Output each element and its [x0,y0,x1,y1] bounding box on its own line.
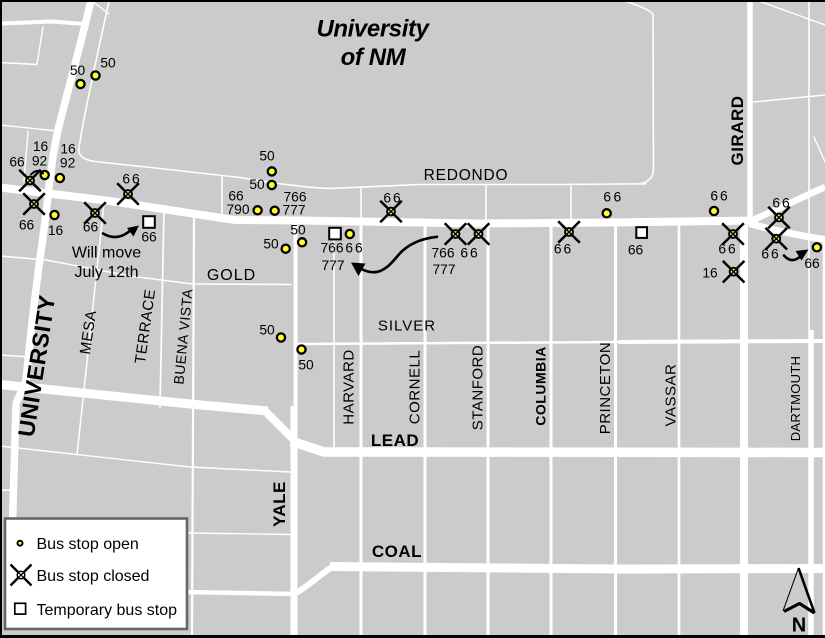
svg-text:66: 66 [554,241,573,256]
svg-text:66: 66 [718,242,737,257]
svg-text:50: 50 [100,56,116,71]
svg-text:66: 66 [804,256,820,271]
svg-text:July 12th: July 12th [74,264,138,281]
svg-text:92: 92 [32,154,47,169]
svg-text:PRINCETON: PRINCETON [597,342,614,435]
svg-text:COLUMBIA: COLUMBIA [533,346,549,425]
svg-text:16: 16 [60,142,76,157]
svg-text:HARVARD: HARVARD [341,349,358,424]
svg-text:STANFORD: STANFORD [470,345,487,430]
svg-text:Temporary bus stop: Temporary bus stop [37,602,178,619]
svg-text:SILVER: SILVER [378,318,436,335]
svg-text:16: 16 [33,139,49,154]
svg-text:66: 66 [383,191,402,206]
svg-text:50: 50 [263,237,279,252]
svg-text:16: 16 [702,266,718,281]
svg-text:GIRARD: GIRARD [728,95,747,165]
svg-text:Will move: Will move [72,245,141,262]
svg-text:Bus stop closed: Bus stop closed [37,568,150,585]
svg-text:COAL: COAL [372,542,422,561]
svg-text:66: 66 [141,230,157,245]
svg-text:66: 66 [345,241,364,256]
svg-text:50: 50 [290,222,306,237]
svg-text:777: 777 [321,258,344,273]
svg-text:DARTMOUTH: DARTMOUTH [788,356,803,442]
svg-text:66: 66 [710,189,729,204]
svg-text:766: 766 [320,241,343,256]
svg-text:of NM: of NM [341,44,407,71]
svg-text:VASSAR: VASSAR [663,364,680,427]
svg-text:66: 66 [761,247,780,262]
svg-text:N: N [792,615,806,637]
svg-text:66: 66 [19,218,35,233]
svg-text:66: 66 [460,246,479,261]
svg-text:LEAD: LEAD [371,431,419,450]
svg-text:50: 50 [298,358,314,373]
svg-text:GOLD: GOLD [207,267,256,284]
svg-text:University: University [316,16,430,43]
svg-text:790: 790 [226,202,249,217]
svg-text:50: 50 [249,177,265,192]
svg-text:REDONDO: REDONDO [424,167,509,184]
svg-text:66: 66 [772,196,791,211]
svg-text:CORNELL: CORNELL [407,350,424,424]
svg-text:YALE: YALE [270,481,289,527]
svg-text:66: 66 [628,243,644,258]
svg-text:66: 66 [603,189,623,204]
svg-text:66: 66 [122,172,141,187]
svg-text:777: 777 [282,203,305,218]
svg-text:777: 777 [432,262,455,277]
svg-text:Bus stop open: Bus stop open [37,536,139,553]
svg-text:50: 50 [259,323,275,338]
svg-text:766: 766 [431,246,454,261]
svg-text:50: 50 [259,149,275,164]
svg-text:50: 50 [70,63,86,78]
svg-text:92: 92 [60,156,75,171]
svg-text:66: 66 [83,220,99,235]
svg-text:66: 66 [9,155,25,170]
svg-text:16: 16 [48,223,64,238]
